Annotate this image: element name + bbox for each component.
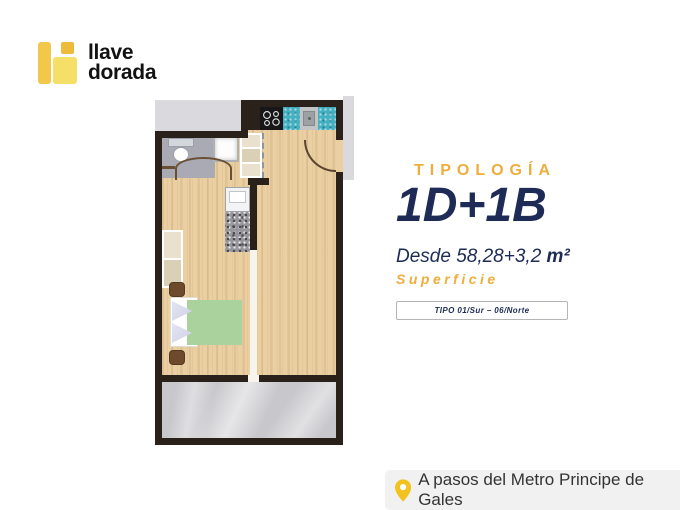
area-caption: Superficie bbox=[396, 271, 576, 287]
wall-divider bbox=[250, 185, 257, 250]
kitchen-counter-right bbox=[318, 107, 336, 130]
exterior-corridor-right bbox=[343, 96, 354, 180]
kitchen-counter-left bbox=[283, 107, 300, 130]
wall-stub-closet bbox=[248, 178, 269, 185]
washer-lid bbox=[229, 191, 246, 203]
left-closet-cells bbox=[162, 230, 183, 288]
exterior-corridor-top bbox=[155, 100, 248, 131]
granite-counter bbox=[225, 212, 250, 252]
floorplan bbox=[155, 100, 343, 445]
unit-tag-badge: TIPO 01/Sur – 06/Norte bbox=[396, 301, 568, 320]
bathroom-door-jamb bbox=[162, 166, 175, 169]
wall-left bbox=[155, 131, 162, 445]
area-text: Desde 58,28+3,2 bbox=[396, 246, 541, 267]
wall-top-left bbox=[155, 131, 248, 138]
nightstand-bottom bbox=[169, 350, 185, 365]
kitchen-cooktop bbox=[260, 107, 283, 130]
wall-right-bottom bbox=[336, 172, 343, 445]
brand-name: llave dorada bbox=[88, 43, 156, 83]
kitchen-wall-stub bbox=[248, 107, 260, 130]
wall-right-top bbox=[336, 100, 343, 140]
bathroom-door-arc bbox=[175, 157, 232, 180]
unit-tag-text: TIPO 01/Sur – 06/Norte bbox=[434, 306, 529, 315]
typology-block: TIPOLOGÍA 1D+1B Desde 58,28+3,2 m² Super… bbox=[396, 162, 576, 287]
washer bbox=[225, 187, 250, 212]
flyer-canvas: llave dorada bbox=[0, 0, 680, 510]
dashed-cabinet-line bbox=[262, 133, 264, 178]
divider-open-strip bbox=[250, 250, 257, 375]
terrace-door-gap bbox=[248, 375, 259, 382]
sink-drain bbox=[308, 117, 311, 120]
typology-label: TIPOLOGÍA bbox=[396, 162, 576, 180]
toilet-tank bbox=[168, 138, 194, 147]
kitchen-sink bbox=[300, 107, 318, 130]
entrance-opening bbox=[336, 140, 343, 172]
location-bar: A pasos del Metro Principe de Gales bbox=[385, 470, 680, 510]
area-unit: m² bbox=[547, 246, 570, 267]
area-line: Desde 58,28+3,2 m² bbox=[396, 246, 576, 268]
location-pin-icon bbox=[395, 479, 411, 502]
wall-bottom bbox=[155, 438, 343, 445]
brand-logo: llave dorada bbox=[38, 40, 156, 85]
location-text: A pasos del Metro Principe de Gales bbox=[418, 470, 680, 510]
typology-code: 1D+1B bbox=[396, 182, 576, 230]
wall-top bbox=[241, 100, 343, 107]
wardrobe-cells bbox=[240, 133, 262, 178]
bed-duvet bbox=[187, 300, 242, 345]
terrace bbox=[162, 382, 336, 438]
llave-dorada-logo-icon bbox=[38, 40, 78, 85]
nightstand-top bbox=[169, 282, 185, 297]
brand-name-line2: dorada bbox=[88, 61, 156, 84]
